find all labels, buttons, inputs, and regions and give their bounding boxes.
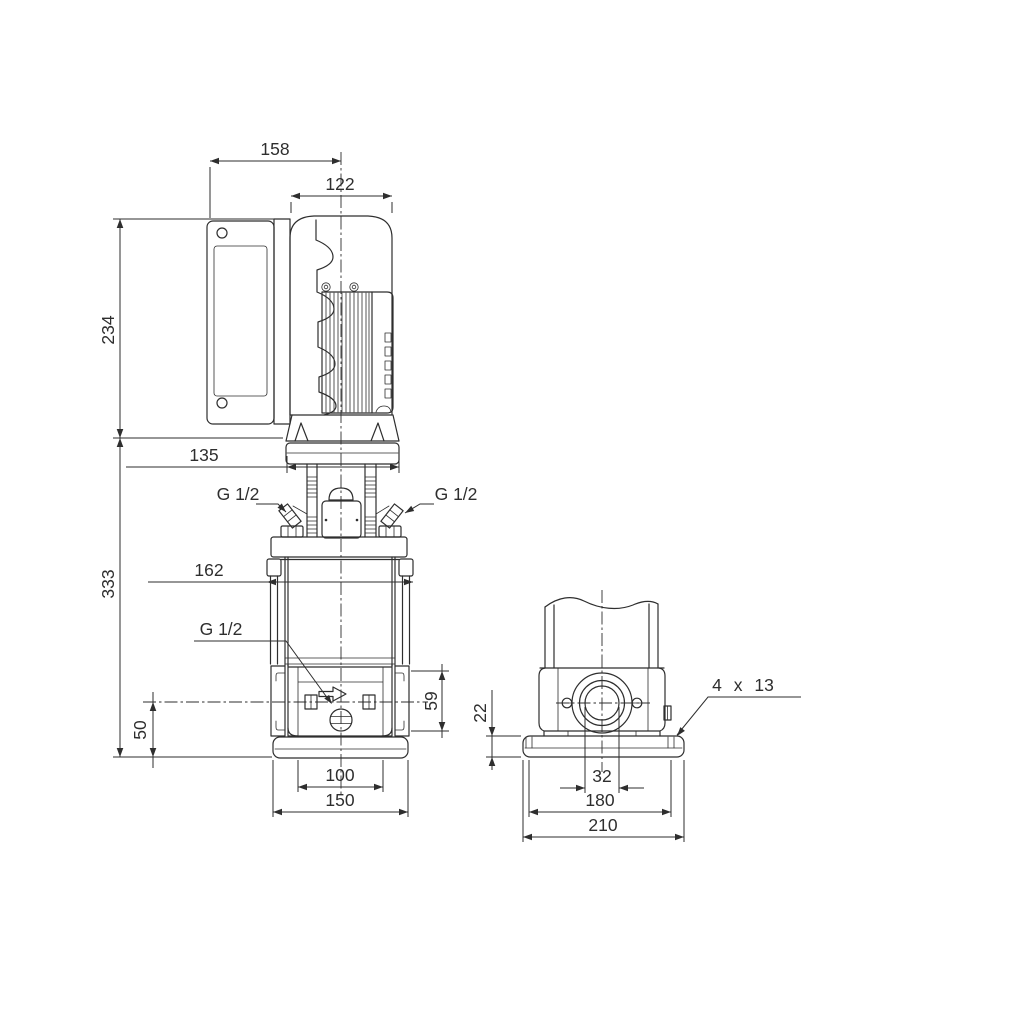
dim-port-center-height-label: 50: [130, 720, 150, 740]
dimensional-drawing: 158 122 234 333: [0, 0, 1024, 1024]
base-bolt-holes: [526, 737, 674, 748]
dim-bolt-hole-spacing-label: 180: [585, 790, 614, 810]
stool-post-right: [365, 464, 376, 537]
bell-tab-right: [371, 423, 384, 441]
dim-motor-width-label: 122: [325, 174, 354, 194]
port-flange-left: [271, 666, 285, 736]
terminal-box-hole-bottom: [217, 398, 227, 408]
pump-head-flange: [271, 537, 407, 557]
dim-head-width: 135: [126, 445, 399, 473]
dim-overall-width: 158: [210, 139, 341, 218]
dim-base-hole-spacing-label: 100: [325, 765, 354, 785]
motor-vent-band: [372, 292, 393, 413]
dim-motor-height: 234: [98, 219, 289, 438]
dim-head-width-label: 135: [189, 445, 218, 465]
base-plate-side: [523, 736, 684, 757]
motor-body: [290, 216, 393, 415]
dim-motor-width: 122: [291, 174, 392, 213]
flow-direction-arrow: [319, 687, 346, 701]
terminal-box: [207, 219, 290, 424]
terminal-box-hole-top: [217, 228, 227, 238]
dim-baseplate-height-label: 22: [470, 703, 490, 722]
front-view: 158 122 234 333: [98, 139, 477, 817]
dim-baseplate-height: 22: [470, 690, 521, 770]
dim-port-flange-height: 59: [411, 664, 449, 738]
label-bolt-holes: 4 x 13: [677, 675, 801, 736]
dim-sleeve-width-label: 162: [194, 560, 223, 580]
drawing-svg: 158 122 234 333: [0, 0, 1024, 1024]
dim-base-hole-spacing: 100: [298, 760, 383, 792]
dim-baseplate-length-label: 210: [588, 815, 617, 835]
dim-overall-width-label: 158: [260, 139, 289, 159]
label-drain-port-text: G 1/2: [200, 619, 243, 639]
dim-pump-height-label: 333: [98, 569, 118, 598]
staybolt-nut-left: [267, 559, 281, 576]
motor-screw-right: [350, 283, 358, 291]
label-port-right-text: G 1/2: [435, 484, 478, 504]
chamber-stack: [267, 557, 413, 666]
side-view: 22 4 x 13 32 180 210: [470, 590, 801, 842]
side-body: [539, 668, 671, 736]
dim-port-flange-height-label: 59: [421, 691, 441, 710]
label-drain-port: G 1/2: [194, 619, 332, 704]
label-bolt-holes-text: 4 x 13: [712, 675, 774, 695]
sleeve-walls: [285, 557, 395, 666]
staybolts: [271, 576, 410, 664]
label-port-right: G 1/2: [405, 484, 477, 513]
dim-motor-height-label: 234: [98, 315, 118, 344]
label-port-left: G 1/2: [217, 484, 286, 512]
label-port-left-text: G 1/2: [217, 484, 260, 504]
motor-screw-left: [322, 283, 330, 291]
sleeve-break: [545, 598, 658, 668]
dim-port-bore-label: 32: [592, 766, 611, 786]
port-flange-right: [395, 666, 409, 736]
pump-base: [271, 664, 409, 736]
base-plate-front: [273, 737, 408, 758]
motor-cooling-fins: [322, 292, 372, 413]
gauge-plug-right: [381, 504, 403, 528]
dim-base-width-label: 150: [325, 790, 354, 810]
bell-tab-left: [295, 423, 308, 441]
staybolt-nut-right: [399, 559, 413, 576]
motor-bell: [286, 415, 399, 464]
coupling-guard: [322, 501, 361, 538]
stool-post-left: [307, 464, 317, 537]
